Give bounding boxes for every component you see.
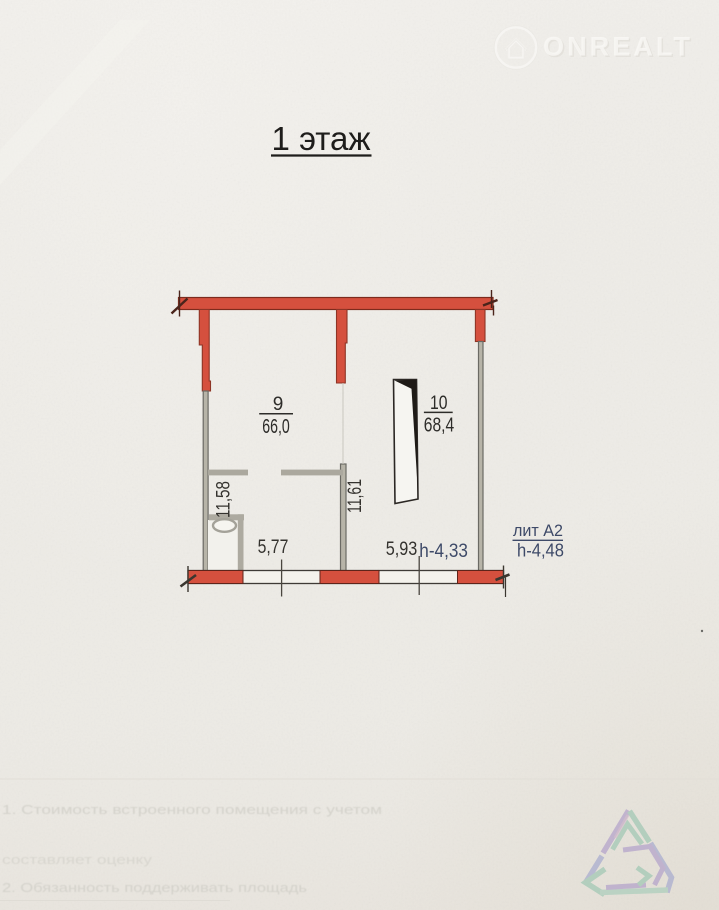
svg-text:1 этаж: 1 этаж [272, 120, 371, 157]
svg-text:1. Стоимость встроенного помещ: 1. Стоимость встроенного помещения с уче… [2, 802, 382, 817]
svg-text:68,4: 68,4 [424, 415, 454, 437]
svg-text:9: 9 [273, 394, 284, 415]
svg-text:11,61: 11,61 [345, 479, 366, 513]
svg-text:составляет оценку: составляет оценку [2, 852, 153, 867]
svg-text:66,0: 66,0 [262, 416, 290, 438]
svg-text:5,93: 5,93 [386, 539, 418, 560]
svg-text:лит А2: лит А2 [513, 521, 563, 540]
svg-text:10: 10 [430, 393, 448, 414]
svg-text:h-4,33: h-4,33 [419, 541, 468, 562]
svg-text:11,58: 11,58 [214, 481, 235, 518]
svg-text:2. Обязанность поддерживать пл: 2. Обязанность поддерживать площадь [2, 880, 307, 895]
svg-text:ONREALT: ONREALT [543, 32, 693, 62]
svg-text:5,77: 5,77 [258, 537, 289, 558]
svg-text:h-4,48: h-4,48 [517, 541, 564, 561]
